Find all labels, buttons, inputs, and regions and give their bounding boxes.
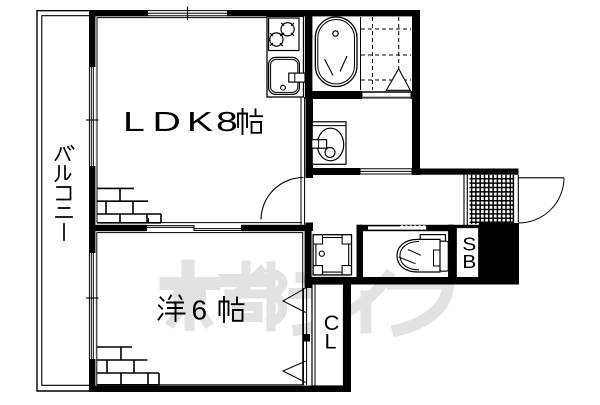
svg-text:B: B: [462, 252, 476, 273]
svg-text:6: 6: [192, 295, 208, 326]
svg-text:LDK8: LDK8: [123, 106, 238, 137]
svg-text:L: L: [325, 330, 337, 354]
